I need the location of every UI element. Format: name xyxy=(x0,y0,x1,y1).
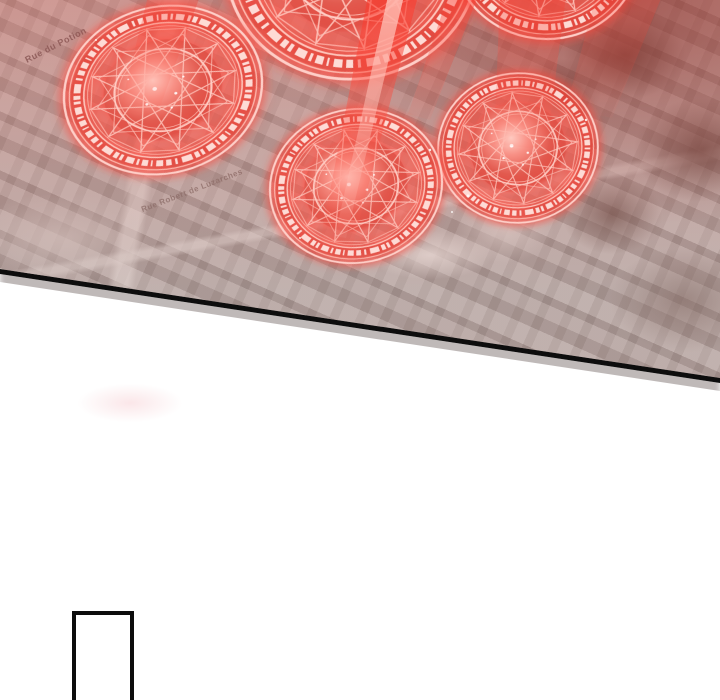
comic-page: Rue du Potion Rue Robert de Luzarches xyxy=(0,0,720,700)
next-panel-frame xyxy=(72,611,134,700)
